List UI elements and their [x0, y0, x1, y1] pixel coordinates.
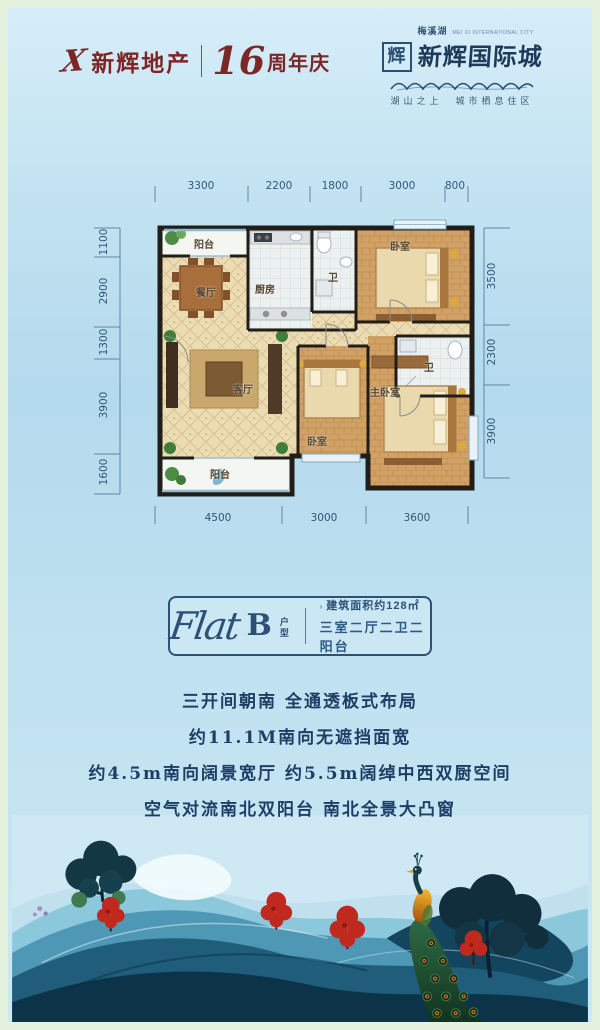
dim-bottom-3: 3600	[389, 512, 445, 524]
project-tagline: 湖山之上 城市栖息住区	[372, 94, 552, 107]
flat-type-letter: B	[246, 611, 271, 641]
dim-top-1: 3300	[173, 180, 229, 192]
feature-line-2: 约11.1M南向无遮挡面宽	[0, 723, 600, 748]
dim-left-3: 1300	[98, 314, 110, 370]
dim-left-1: 1100	[98, 214, 110, 270]
anniversary-number: 16	[212, 42, 265, 80]
brand-divider	[201, 45, 202, 77]
badge-divider	[305, 608, 306, 644]
room-label-kitchen: 厨房	[255, 281, 275, 296]
dim-top-4: 3000	[374, 180, 430, 192]
room-label-master: 主卧室	[370, 384, 400, 399]
area-text: ›建筑面积约128㎡	[320, 597, 430, 613]
project-name: 新辉国际城	[416, 37, 543, 72]
dim-top-5: 800	[427, 180, 483, 192]
brand-name: 新辉地产	[91, 44, 191, 78]
feature-line-4: 空气对流南北双阳台 南北全景大凸窗	[0, 795, 600, 820]
dim-left-5: 1600	[98, 444, 110, 500]
area-value: 建筑面积约128㎡	[326, 600, 419, 612]
dim-bottom-2: 3000	[296, 512, 352, 524]
dim-top-3: 1800	[307, 180, 363, 192]
bottom-artwork	[8, 815, 592, 1022]
anniversary-text: 周年庆	[267, 47, 330, 76]
dim-top-2: 2200	[251, 180, 307, 192]
feature-line-3: 约4.5m南向阔景宽厅 约5.5m阔绰中西双厨空间	[0, 759, 600, 784]
flat-type-badge: Flat B 户型 ›建筑面积约128㎡ 三室二厅二卫二阳台	[168, 596, 432, 656]
bed-s-icon	[296, 360, 366, 418]
dim-left-4: 3900	[98, 377, 110, 433]
room-label-balcony-bottom: 阳台	[210, 466, 230, 481]
room-label-dining: 餐厅	[196, 284, 216, 299]
flat-script-text: Flat	[167, 607, 241, 645]
brand-x-icon: X	[59, 43, 89, 80]
feature-line-1: 三开间朝南 全通透板式布局	[0, 687, 600, 712]
dim-right-1: 3500	[486, 248, 498, 304]
room-label-balcony-top: 阳台	[194, 236, 214, 251]
room-label-bath1: 卫	[328, 269, 338, 284]
dim-right-2: 2300	[486, 324, 498, 380]
project-logo: 辉 梅溪湖 MEI XI INTERNATIONAL CITY 新辉国际城 湖山…	[372, 24, 552, 107]
dim-left-2: 2900	[98, 263, 110, 319]
district-label: 梅溪湖	[418, 24, 448, 37]
dim-bottom-1: 4500	[190, 512, 246, 524]
area-marker-icon: ›	[320, 602, 324, 611]
poster-page: X 新辉地产 16 周年庆 辉 梅溪湖 MEI XI INTERNATIONAL…	[0, 0, 600, 1030]
district-label-en: MEI XI INTERNATIONAL CITY	[453, 30, 534, 36]
room-label-living: 客厅	[233, 381, 253, 396]
room-label-bedroom-ne: 卧室	[390, 238, 410, 253]
room-label-bath2: 卫	[424, 359, 434, 374]
dim-right-3: 3900	[486, 403, 498, 459]
seal-icon: 辉	[382, 42, 412, 72]
flat-type-suffix: 户型	[278, 617, 291, 639]
waves-ornament-icon	[387, 74, 537, 92]
brand-left: X 新辉地产 16 周年庆	[62, 42, 330, 80]
room-label-bedroom-s: 卧室	[307, 433, 327, 448]
rooms-config-text: 三室二厅二卫二阳台	[320, 617, 430, 655]
